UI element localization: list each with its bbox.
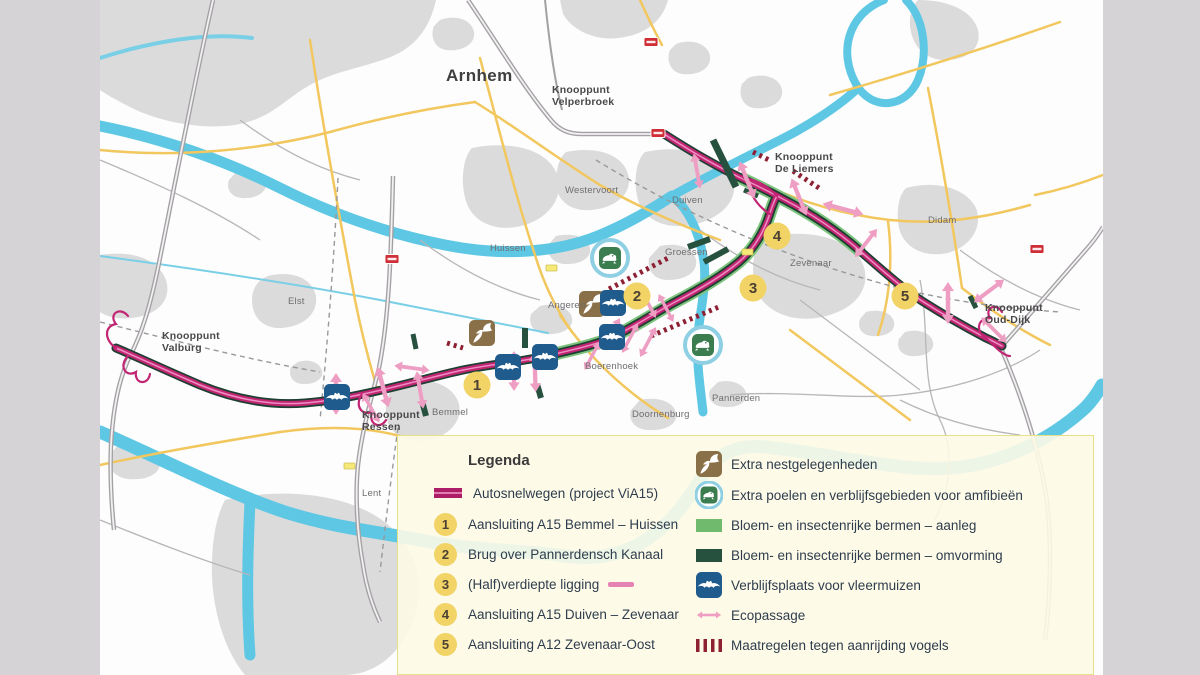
road-shield-icon	[385, 255, 399, 264]
svg-text:3: 3	[749, 280, 757, 297]
legend-item-label: Brug over Pannerdensch Kanaal	[468, 547, 663, 562]
green-dark-icon	[695, 541, 723, 569]
legend-item-ecopassage: Ecopassage	[695, 603, 805, 627]
svg-text:2: 2	[633, 288, 641, 305]
legend-item-label: Bloem- en insectenrijke bermen – aanleg	[731, 518, 976, 533]
bat-icon	[599, 324, 625, 350]
legend-item-label: Extra nestgelegenheden	[731, 457, 877, 472]
legend-item-label: Autosnelwegen (project ViA15)	[473, 486, 658, 501]
bat-icon	[532, 344, 558, 370]
letterbox-right	[1103, 0, 1200, 675]
marker-3: 3	[740, 275, 767, 302]
legend-item-label: Aansluiting A15 Duiven – Zevenaar	[468, 607, 679, 622]
road-shield-icon	[651, 129, 665, 138]
legend-item-highway: Autosnelwegen (project ViA15)	[434, 481, 658, 505]
legend-item-4: 4 Aansluiting A15 Duiven – Zevenaar	[434, 602, 679, 626]
legend-item-label: Verblijfsplaats voor vleermuizen	[731, 578, 921, 593]
letterbox-left	[0, 0, 100, 675]
frog-icon	[592, 240, 628, 276]
legend-item-label: Bloem- en insectenrijke bermen – omvormi…	[731, 548, 1003, 563]
bat-icon	[324, 384, 350, 410]
legend-item-label: Aansluiting A15 Bemmel – Huissen	[468, 517, 678, 532]
legend-item-bat: Verblijfsplaats voor vleermuizen	[695, 573, 921, 597]
legend-marker-4: 4	[434, 603, 457, 626]
svg-text:4: 4	[773, 228, 782, 245]
legend-marker-2: 2	[434, 543, 457, 566]
frog-icon	[695, 481, 723, 509]
road-shield-icon	[644, 38, 658, 47]
legend-panel: Legenda Autosnelwegen (project ViA15) 1 …	[397, 435, 1094, 675]
green-light-icon	[695, 511, 723, 539]
legend-item-label: Maatregelen tegen aanrijding vogels	[731, 638, 949, 653]
legend-title: Legenda	[468, 452, 530, 469]
road-shield-icon	[1030, 245, 1044, 254]
marker-2: 2	[624, 283, 651, 310]
bat-icon	[600, 290, 626, 316]
swallow-icon	[695, 450, 723, 478]
frog-icon	[685, 327, 721, 363]
bat-icon	[495, 354, 521, 380]
legend-item-label: Ecopassage	[731, 608, 805, 623]
swallow-icon	[469, 320, 495, 346]
red-dashes-icon	[695, 631, 723, 659]
legend-item-2: 2 Brug over Pannerdensch Kanaal	[434, 542, 663, 566]
legend-item-1: 1 Aansluiting A15 Bemmel – Huissen	[434, 512, 678, 536]
highway-line-icon	[434, 479, 462, 507]
legend-marker-5: 5	[434, 633, 457, 656]
marker-5: 5	[892, 283, 919, 310]
marker-1: 1	[464, 372, 491, 399]
svg-text:5: 5	[901, 288, 909, 305]
legend-item-5: 5 Aansluiting A12 Zevenaar-Oost	[434, 632, 655, 656]
svg-text:1: 1	[473, 377, 481, 394]
pink-line-icon	[608, 582, 634, 587]
legend-item-berm-omvorming: Bloem- en insectenrijke bermen – omvormi…	[695, 543, 1003, 567]
via15-project-map: 1 2 3 4 5 Arnhem KnooppuntVelperbroek Kn…	[0, 0, 1200, 675]
legend-marker-1: 1	[434, 513, 457, 536]
bat-icon	[695, 571, 723, 599]
legend-item-label: (Half)verdiepte ligging	[468, 577, 599, 592]
eco-arrow-icon	[695, 601, 723, 629]
marker-4: 4	[764, 223, 791, 250]
legend-item-nest: Extra nestgelegenheden	[695, 452, 877, 476]
legend-item-amphibian: Extra poelen en verblijfsgebieden voor a…	[695, 483, 1023, 507]
legend-marker-3: 3	[434, 573, 457, 596]
legend-item-label: Extra poelen en verblijfsgebieden voor a…	[731, 488, 1023, 503]
legend-item-label: Aansluiting A12 Zevenaar-Oost	[468, 637, 655, 652]
legend-item-bird-measures: Maatregelen tegen aanrijding vogels	[695, 633, 949, 657]
legend-item-3: 3 (Half)verdiepte ligging	[434, 572, 634, 596]
legend-item-berm-aanleg: Bloem- en insectenrijke bermen – aanleg	[695, 513, 976, 537]
